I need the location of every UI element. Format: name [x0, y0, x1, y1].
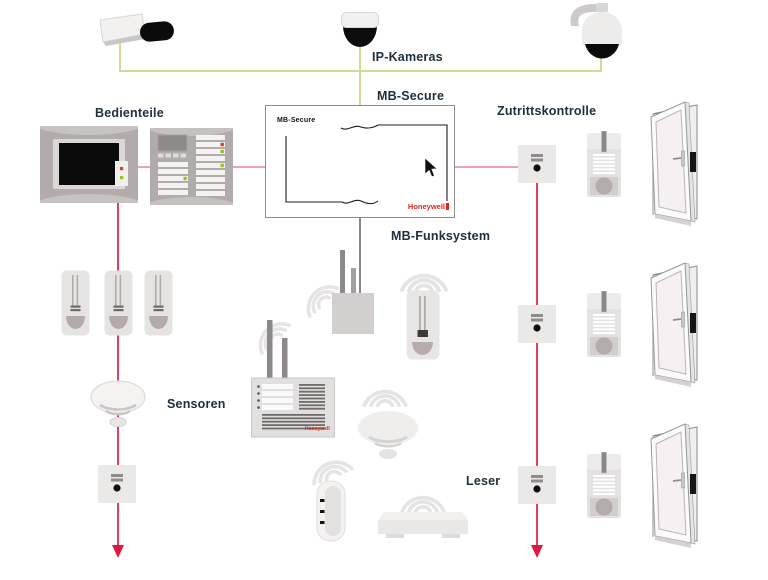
label-zutrittskontrolle: Zutrittskontrolle [497, 104, 596, 118]
io-module-icon [518, 145, 556, 188]
dome-camera-icon [341, 12, 379, 55]
wireless-smoke-detector-icon [357, 410, 419, 467]
wireless-reader-icon [374, 512, 472, 545]
io-module-icon [518, 466, 556, 509]
label-ip-kameras: IP-Kameras [372, 50, 443, 64]
honeywell-logo-block [446, 203, 449, 210]
card-reader-icon [587, 452, 621, 523]
io-module-icon [518, 305, 556, 348]
system-diagram: IP-Kameras MB-Secure Bedienteile Zutritt… [0, 0, 768, 580]
central-unit: MB-Secure Honeywell [265, 105, 455, 218]
label-sensoren: Sensoren [167, 397, 226, 411]
ptz-camera-icon [565, 2, 629, 69]
door-icon [645, 256, 703, 397]
motion-sensor-icon [144, 270, 173, 341]
door-icon [645, 417, 703, 558]
wifi-waves-icon [360, 377, 410, 412]
label-mb-secure: MB-Secure [377, 89, 444, 103]
access-link [454, 166, 519, 168]
honeywell-logo: Honeywell [408, 202, 445, 211]
io-module-icon [98, 465, 136, 508]
cursor-icon [424, 158, 438, 180]
motion-sensor-icon [104, 270, 133, 341]
label-mb-funksystem: MB-Funksystem [391, 229, 490, 243]
central-unit-title: MB-Secure [277, 117, 315, 124]
card-reader-icon [587, 131, 621, 202]
radio-control-panel-icon [251, 318, 335, 443]
arrow-down-icon [531, 545, 543, 558]
label-bedienteile: Bedienteile [95, 106, 164, 120]
honeywell-logo: Honeywell [305, 426, 330, 432]
touch-panel-icon [40, 126, 138, 208]
keypad-panel-icon [150, 128, 233, 210]
arrow-down-icon [112, 545, 124, 558]
card-reader-icon [587, 291, 621, 362]
remote-fob-icon [316, 480, 346, 547]
radio-gateway-icon [332, 250, 374, 339]
bullet-camera-icon [100, 12, 176, 53]
label-leser: Leser [466, 474, 500, 488]
door-icon [645, 95, 703, 236]
smoke-detector-icon [90, 380, 146, 435]
motion-sensor-icon [61, 270, 90, 341]
panel-link-2 [230, 166, 266, 168]
wireless-motion-sensor-icon [406, 290, 440, 365]
